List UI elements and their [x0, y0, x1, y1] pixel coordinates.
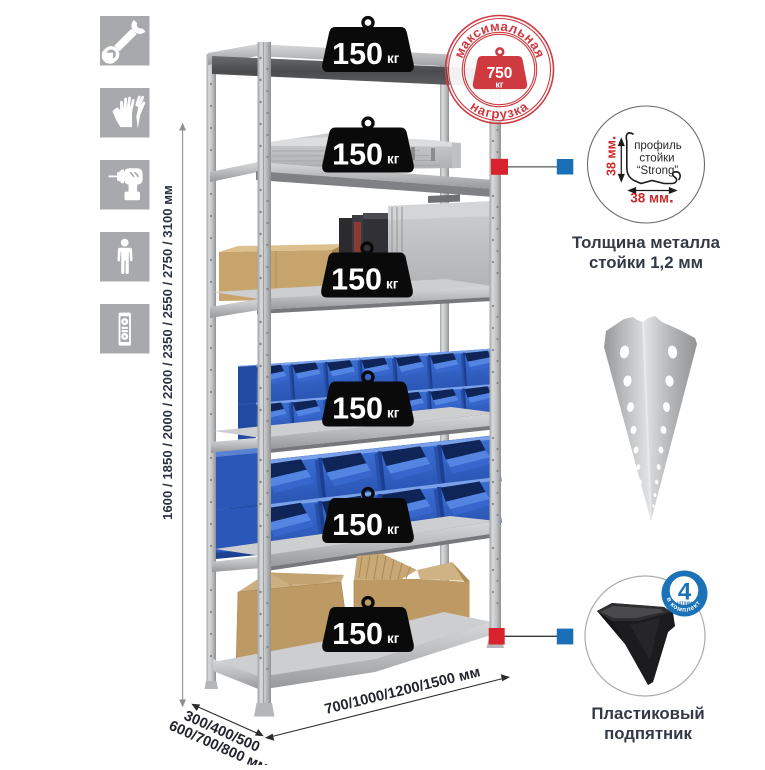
svg-text:Толщина металла: Толщина металла — [572, 233, 721, 252]
svg-text:штуки: штуки — [677, 601, 692, 607]
svg-text:150: 150 — [331, 263, 382, 297]
svg-text:стойки 1,2 мм: стойки 1,2 мм — [589, 253, 703, 272]
svg-text:кг: кг — [387, 406, 400, 421]
svg-text:150: 150 — [332, 37, 383, 71]
svg-text:150: 150 — [332, 392, 383, 426]
svg-text:подпятник: подпятник — [604, 724, 692, 743]
svg-text:1600 / 1850 / 2000 / 2200 / 23: 1600 / 1850 / 2000 / 2200 / 2350 / 2550 … — [160, 185, 175, 520]
svg-text:“Strong”: “Strong” — [637, 165, 679, 177]
svg-text:150: 150 — [332, 508, 383, 542]
svg-text:профиль: профиль — [634, 140, 682, 152]
svg-text:кг: кг — [387, 631, 400, 646]
svg-text:38 мм.: 38 мм. — [603, 136, 620, 176]
svg-text:кг: кг — [495, 80, 504, 90]
svg-text:кг: кг — [386, 277, 399, 292]
svg-text:150: 150 — [332, 617, 383, 651]
svg-text:38 мм.: 38 мм. — [630, 188, 673, 207]
svg-text:кг: кг — [387, 522, 400, 537]
svg-text:кг: кг — [387, 51, 400, 66]
svg-text:кг: кг — [387, 152, 400, 167]
svg-text:150: 150 — [332, 138, 383, 172]
svg-text:стойки: стойки — [639, 153, 674, 165]
svg-text:Пластиковый: Пластиковый — [591, 704, 704, 723]
